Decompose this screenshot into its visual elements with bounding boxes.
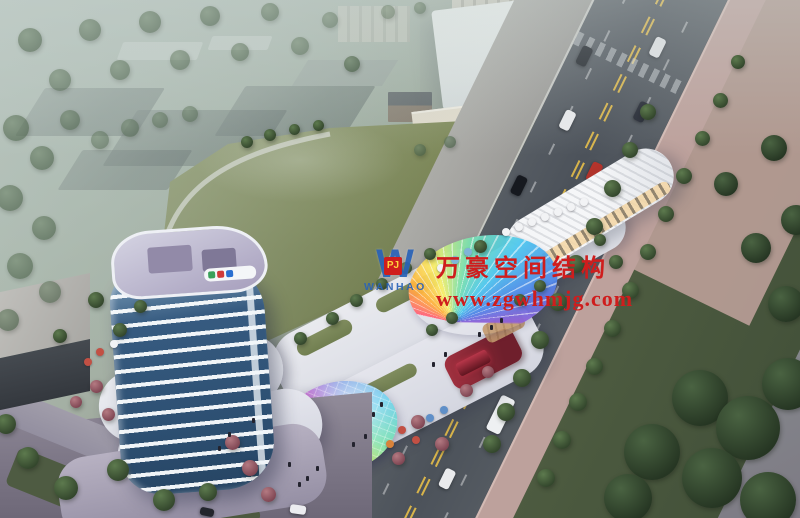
umbrella [541,213,549,221]
tree [241,136,253,148]
tree [225,435,240,450]
tree [30,146,54,170]
tree [53,329,67,343]
tree [658,206,674,222]
tree [0,414,16,434]
tree [313,120,324,131]
watermark-logo: W PJ WANHAO [364,248,426,300]
tree [264,129,276,141]
person [372,412,375,417]
tree [139,11,161,33]
tree [49,69,71,91]
person [432,362,435,367]
tree [624,424,680,480]
tree [79,19,101,41]
person [364,434,367,439]
tree [200,6,220,26]
tree [731,55,745,69]
tree [444,136,456,148]
person [228,432,231,437]
tree [414,144,426,156]
umbrella [567,203,575,211]
tree [537,469,555,487]
umbrella [386,440,394,448]
watermark: W PJ WANHAO 万豪空间结构 www.zgwhmjg.com [364,248,633,312]
tree [7,253,33,279]
tree [622,142,638,158]
tree [91,131,109,149]
tree [446,312,458,324]
architectural-rendering: 万达广场 [0,0,800,518]
tree [586,358,603,375]
umbrella [96,348,104,356]
umbrella [515,223,523,231]
umbrella [502,228,510,236]
tree [344,56,360,72]
tree [483,435,501,453]
tree [88,292,104,308]
umbrella [426,414,434,422]
tree [0,309,19,331]
umbrella [440,406,448,414]
tree [291,37,309,55]
tree [170,50,190,70]
tree [414,2,426,14]
tree [426,324,438,336]
umbrella [84,358,92,366]
tree [17,447,39,469]
tree [740,472,796,518]
tree [121,119,139,137]
tree [289,124,300,135]
tree [199,483,217,501]
tree [392,452,405,465]
umbrella [528,218,536,226]
tree [640,104,656,120]
umbrella [554,208,562,216]
tree [768,286,800,322]
umbrella [398,426,406,434]
tree [497,403,515,421]
umbrella [580,198,588,206]
tree [553,431,571,449]
umbrella [412,436,420,444]
tree [350,294,363,307]
tree [695,131,710,146]
tree [107,459,129,481]
tree [32,216,56,240]
tree [640,244,656,260]
tree [482,366,494,378]
person [500,318,503,323]
tree [152,112,168,128]
car [199,507,214,518]
tree [604,180,621,197]
person [306,476,309,481]
person [352,442,355,447]
person [252,418,255,423]
tree [294,332,307,345]
tree [110,60,130,80]
tree [741,233,771,263]
person [490,325,493,330]
tree [531,331,549,349]
tree [761,135,787,161]
tree [18,28,42,52]
tree [261,487,276,502]
person [218,446,221,451]
tree [682,448,742,508]
tree [261,3,279,21]
tree [676,168,692,184]
watermark-line1: 万豪空间结构 [436,248,633,283]
tree [70,396,82,408]
tree [39,281,61,303]
tree [54,476,78,500]
tree [182,106,198,122]
tree [604,474,652,518]
person [288,462,291,467]
tree [322,12,338,28]
person [478,332,481,337]
tree [153,489,175,511]
car [289,504,306,515]
person [298,482,301,487]
tree [460,384,473,397]
tree [3,115,29,141]
tree [594,234,606,246]
tree [242,460,258,476]
person [316,466,319,471]
person [444,352,447,357]
tree [781,205,800,235]
watermark-logo-badge: PJ [384,257,402,275]
tree [381,5,395,19]
person [380,402,383,407]
tree [569,393,587,411]
tree [604,320,621,337]
tree [411,415,425,429]
tree [113,323,127,337]
umbrella [110,340,118,348]
watermark-logo-name: WANHAO [364,281,426,293]
tree [60,110,80,130]
tree [586,218,603,235]
tree [102,408,115,421]
tree [713,93,728,108]
tree [435,437,449,451]
tree [326,312,339,325]
tree [90,380,103,393]
tree [0,185,23,211]
tree [513,369,531,387]
tree [231,43,249,61]
tree [134,300,147,313]
watermark-line2: www.zgwhmjg.com [436,286,633,312]
watermark-text: 万豪空间结构 www.zgwhmjg.com [436,248,633,312]
tree [714,172,738,196]
